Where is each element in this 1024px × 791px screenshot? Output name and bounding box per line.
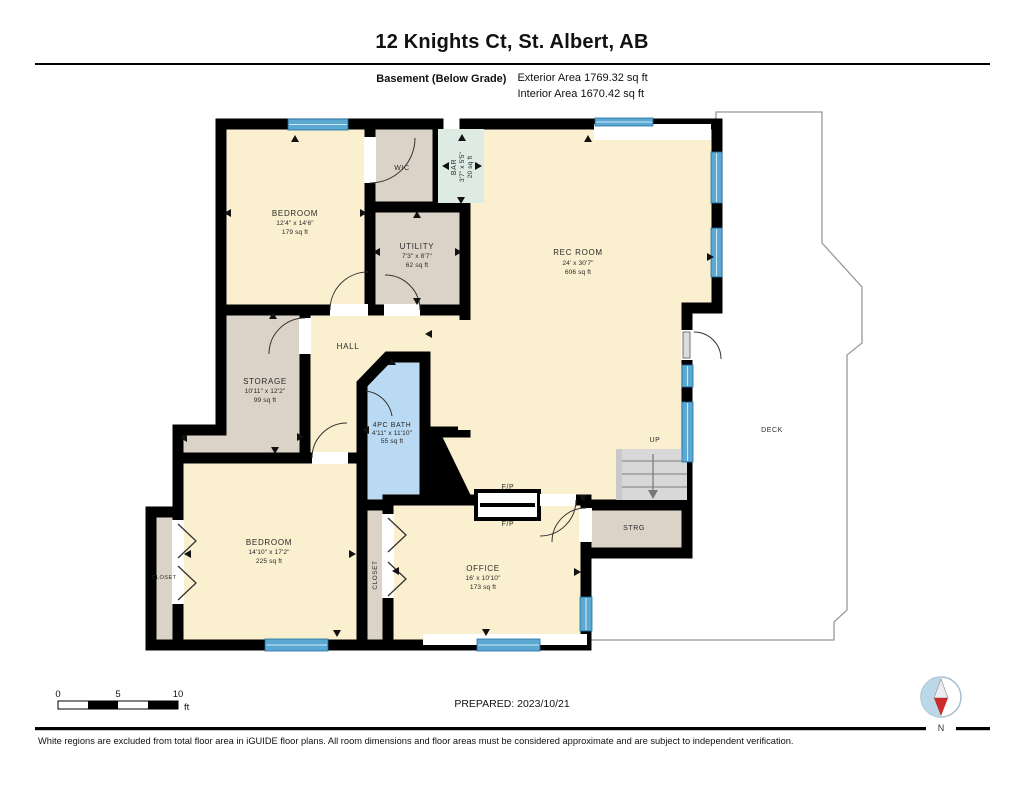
svg-text:OFFICE: OFFICE <box>466 564 500 573</box>
door-gap-bedroom2 <box>312 452 348 464</box>
fireplace-label-lower: F/P <box>502 521 515 528</box>
stairs-up-label: UP <box>650 437 661 444</box>
svg-text:REC ROOM: REC ROOM <box>553 248 603 257</box>
door-leaf-deck <box>683 332 690 358</box>
door-gap-wic <box>364 137 376 183</box>
door-gap-office-strg <box>579 508 592 542</box>
stairs-stringer <box>616 449 622 500</box>
wall-recess-top <box>594 124 711 140</box>
svg-text:20 sq ft: 20 sq ft <box>467 156 474 178</box>
room-strg-label: STRG <box>623 525 645 532</box>
room-hall-label: HALL <box>337 342 360 351</box>
compass-icon: N <box>921 677 961 734</box>
floor-plan-svg: DECK <box>0 0 1024 791</box>
scale-unit-label: ft <box>184 702 190 713</box>
room-office-label: OFFICE 16' x 10'10" 173 sq ft <box>465 564 501 591</box>
svg-text:99 sq ft: 99 sq ft <box>254 397 276 404</box>
svg-text:UTILITY: UTILITY <box>400 242 435 251</box>
scale-tick-0: 0 <box>55 689 60 700</box>
door-gap-storage <box>299 318 311 354</box>
svg-text:STORAGE: STORAGE <box>243 377 287 386</box>
compass-north-label: N <box>938 723 945 733</box>
closet-left-door-gap <box>172 520 184 604</box>
svg-text:62 sq ft: 62 sq ft <box>406 262 428 269</box>
svg-text:7'3" x 8'7": 7'3" x 8'7" <box>402 253 432 260</box>
scale-tick-10: 10 <box>173 689 184 700</box>
svg-text:BEDROOM: BEDROOM <box>246 538 292 547</box>
door-gap-bedroom1 <box>330 304 368 316</box>
svg-text:BAR: BAR <box>451 159 458 175</box>
door-gap-office-top <box>540 494 576 506</box>
svg-text:10'11" x 12'2": 10'11" x 12'2" <box>245 388 286 395</box>
floorplan-page: { "header": { "title": "12 Knights Ct, S… <box>0 0 1024 791</box>
svg-text:16' x 10'10": 16' x 10'10" <box>465 575 501 582</box>
room-closet-left-label: CLOSET <box>152 575 177 581</box>
room-wic-label: WIC <box>394 165 409 172</box>
hall-rec-opening <box>458 320 472 430</box>
svg-text:24' x 30'7": 24' x 30'7" <box>562 260 594 267</box>
svg-text:606 sq ft: 606 sq ft <box>565 269 591 276</box>
staircase <box>616 449 687 500</box>
svg-text:BEDROOM: BEDROOM <box>272 209 318 218</box>
prepared-date: PREPARED: 2023/10/21 <box>454 698 570 710</box>
closet-mid-door-gap <box>382 514 394 598</box>
svg-text:3'7" x 5'5": 3'7" x 5'5" <box>459 151 466 181</box>
svg-text:179 sq ft: 179 sq ft <box>282 229 308 236</box>
fireplace-label-upper: F/P <box>502 484 515 491</box>
svg-text:173 sq ft: 173 sq ft <box>470 584 496 591</box>
footer-divider <box>35 727 990 730</box>
scale-tick-5: 5 <box>115 689 120 700</box>
door-gap-utility <box>384 304 420 316</box>
svg-text:4'11" x 11'10": 4'11" x 11'10" <box>372 430 413 437</box>
footer-disclaimer: White regions are excluded from total fl… <box>38 736 998 746</box>
room-closet-mid-label: CLOSET <box>372 560 379 589</box>
svg-text:14'10" x 17'2": 14'10" x 17'2" <box>248 549 290 556</box>
svg-text:12'4" x 14'6": 12'4" x 14'6" <box>276 220 314 227</box>
scale-bar: 0 5 10 ft <box>55 689 189 713</box>
fireplace <box>476 491 539 519</box>
deck-label: DECK <box>761 427 783 434</box>
svg-text:4PC BATH: 4PC BATH <box>373 422 412 429</box>
svg-text:55 sq ft: 55 sq ft <box>381 438 403 445</box>
svg-text:225 sq ft: 225 sq ft <box>256 558 282 565</box>
